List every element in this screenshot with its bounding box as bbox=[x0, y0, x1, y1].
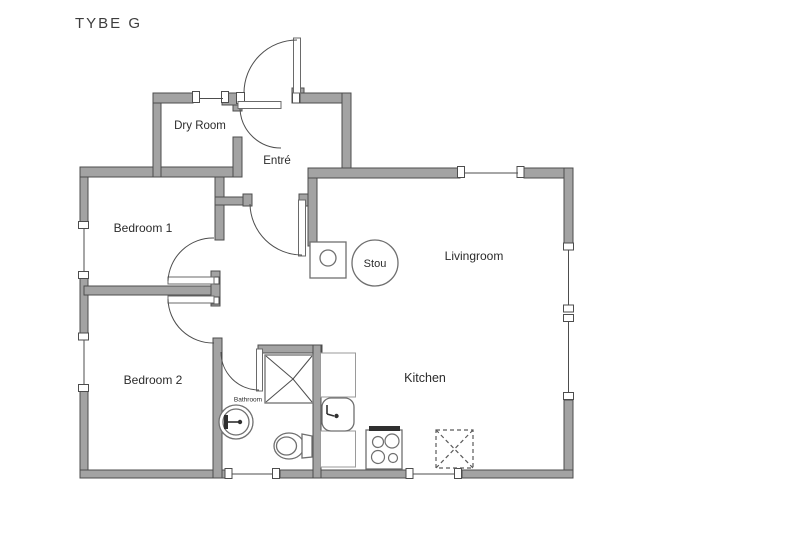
bedroom-1-door bbox=[168, 238, 214, 284]
floor-plan: Dry Room Entré Bedroom 1 Bedroom 2 Livin… bbox=[0, 0, 800, 533]
cooker bbox=[366, 426, 402, 469]
wood-stove-plate bbox=[310, 242, 346, 278]
room-label-dry-room: Dry Room bbox=[174, 120, 226, 132]
shower bbox=[265, 355, 313, 403]
room-label-bedroom-1: Bedroom 1 bbox=[114, 221, 173, 235]
floor-plan-svg bbox=[0, 0, 800, 533]
dry-room-door bbox=[238, 102, 281, 149]
appliance-space-dashed bbox=[436, 430, 473, 468]
bathroom-door bbox=[221, 349, 263, 391]
room-label-livingroom: Livingroom bbox=[445, 249, 504, 263]
room-label-bathroom: Bathroom bbox=[234, 397, 262, 404]
floor-plan-page: TYBE G bbox=[0, 0, 800, 533]
room-label-stou: Stou bbox=[364, 258, 387, 270]
room-label-kitchen: Kitchen bbox=[404, 371, 446, 385]
washbasin bbox=[219, 405, 253, 439]
room-label-entre: Entré bbox=[263, 155, 291, 167]
kitchen-sink bbox=[322, 398, 354, 431]
room-label-bedroom-2: Bedroom 2 bbox=[124, 373, 183, 387]
hall-door bbox=[250, 200, 306, 256]
toilet bbox=[274, 433, 312, 459]
bedroom-2-door bbox=[168, 296, 214, 343]
entrance-door bbox=[244, 38, 301, 93]
